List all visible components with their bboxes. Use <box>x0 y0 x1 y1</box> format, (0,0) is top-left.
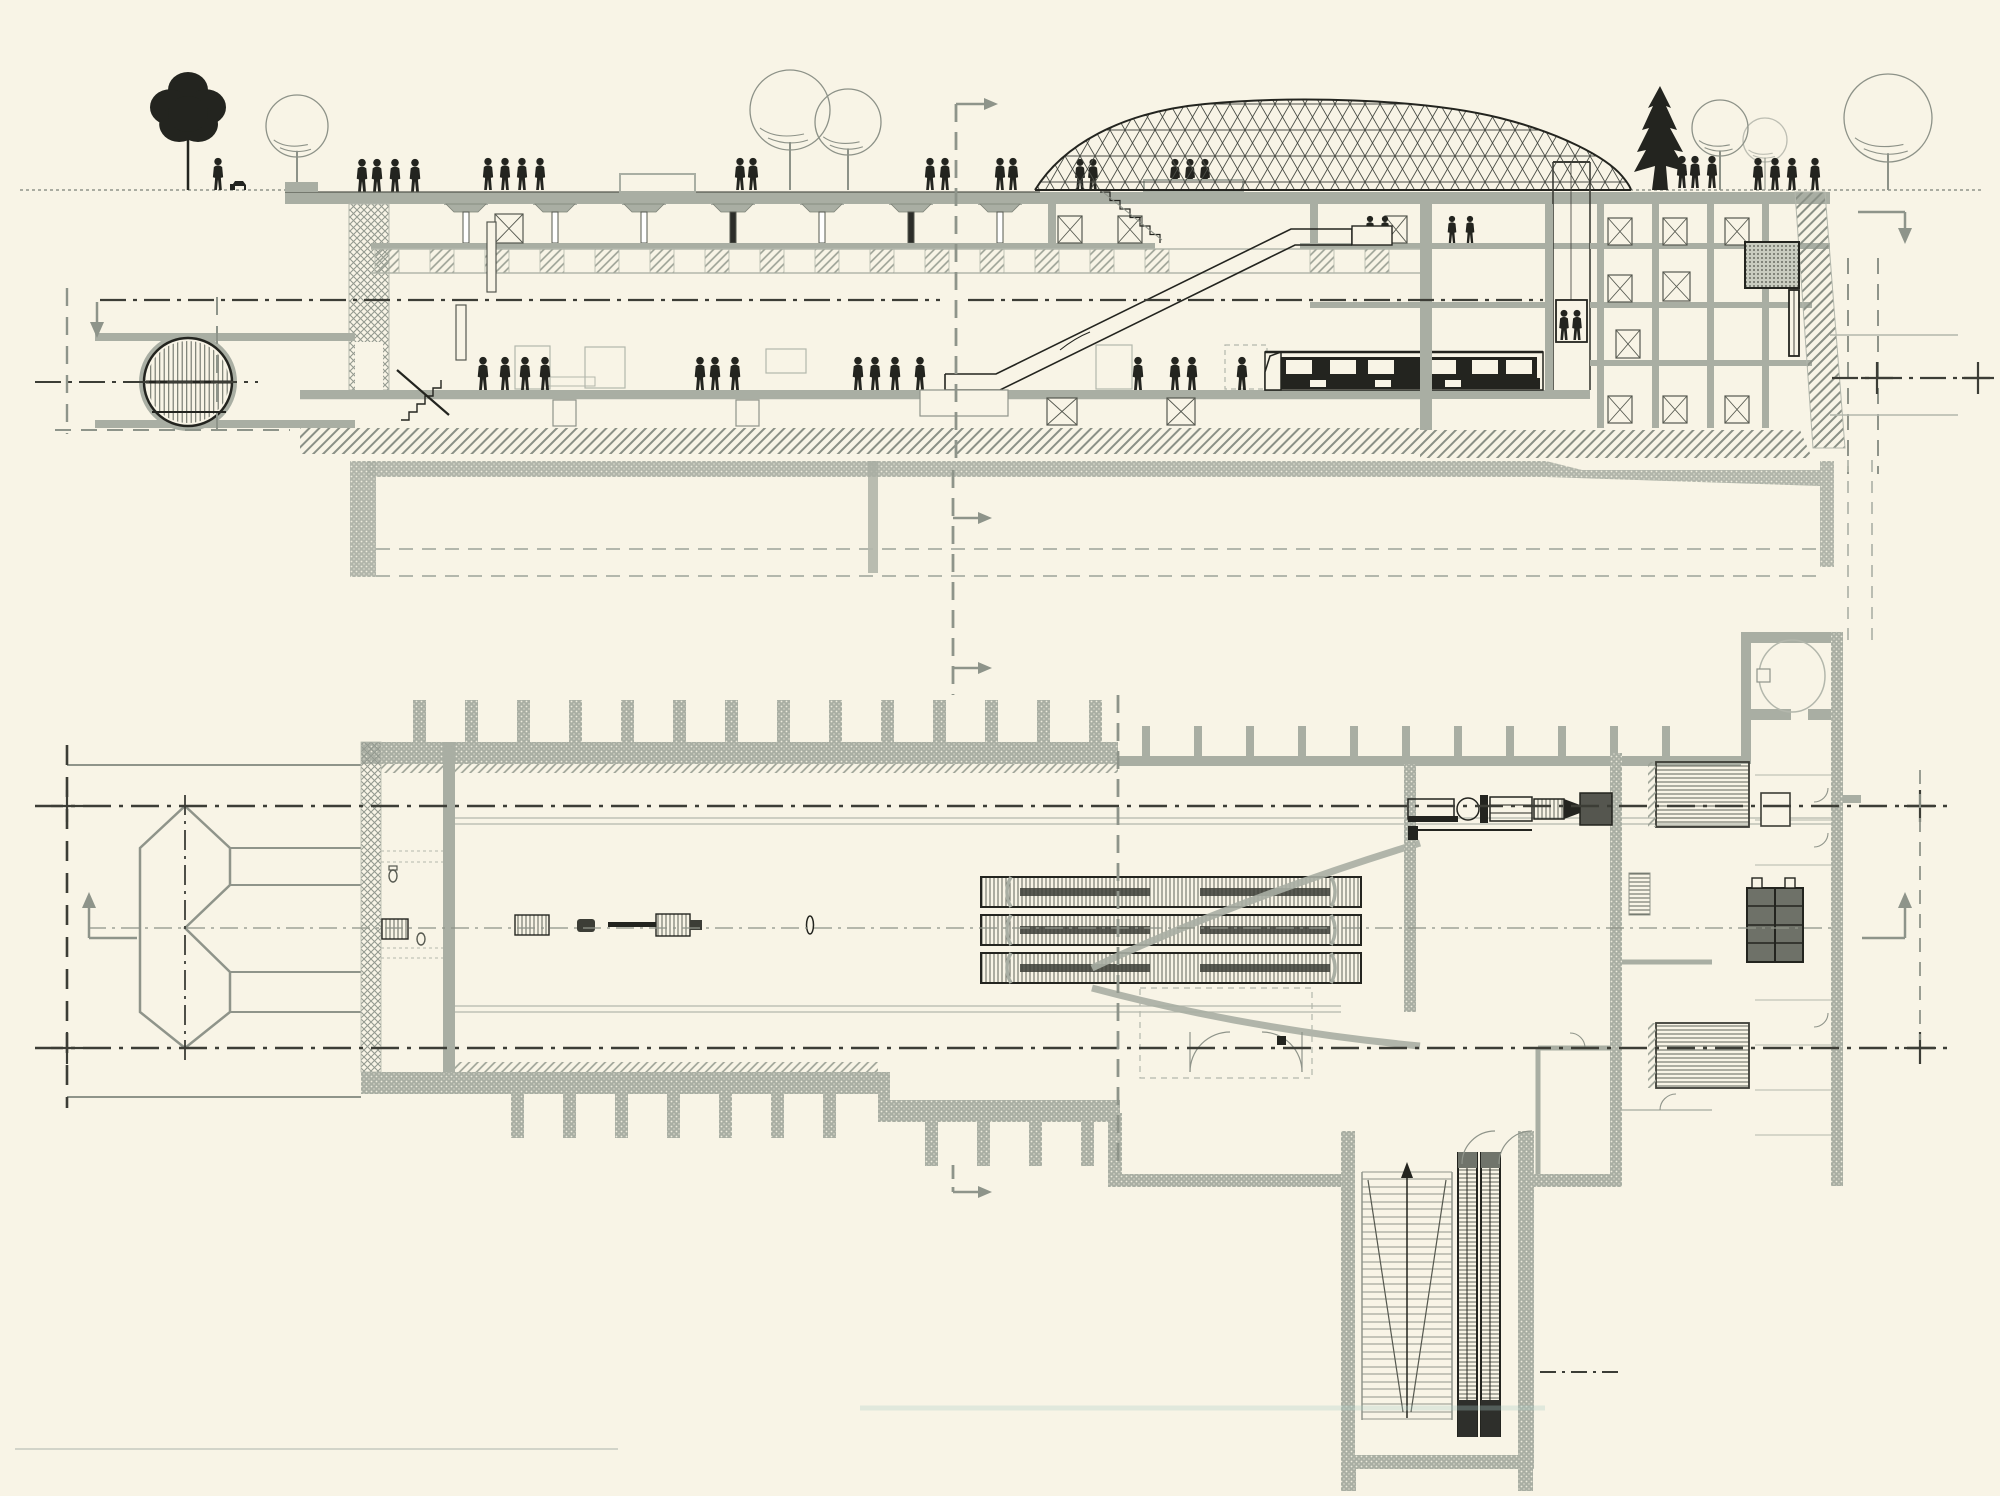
box-top-liner <box>381 764 1118 773</box>
escalator-block-lower-side <box>1648 1023 1656 1088</box>
service-stair <box>1629 873 1650 915</box>
escalator-block-upper <box>1656 762 1749 827</box>
bench-bar <box>608 922 656 927</box>
base-slab-right <box>1420 430 1812 458</box>
escalator-block-lower <box>1656 1023 1749 1088</box>
room-door-1 <box>1608 218 1632 245</box>
building-floor-2b <box>1310 302 1553 308</box>
upper-slab-band <box>367 461 1546 477</box>
mezzanine-door-mid-a <box>1058 216 1082 243</box>
section-train <box>1265 352 1543 390</box>
info-pole-a <box>487 222 496 292</box>
building-left-wall <box>1420 204 1432 430</box>
plant-room-grid <box>1745 242 1799 288</box>
box-left-wall <box>361 742 381 1072</box>
niche-stubs <box>1843 795 1861 803</box>
stalk-wall-left <box>1341 1131 1355 1466</box>
room-door-2 <box>1663 218 1687 245</box>
room-door-8 <box>1663 396 1687 423</box>
room-door-5 <box>1663 272 1690 301</box>
underplatform-xdoor-b <box>1167 398 1195 425</box>
room-door-7 <box>1608 396 1632 423</box>
fanroom-wall-left <box>1741 632 1751 764</box>
building-floor-2 <box>1590 302 1812 308</box>
platform-passengers-2 <box>695 357 741 390</box>
bench-b <box>577 919 595 932</box>
box-top-wall <box>361 742 1118 764</box>
stalk-wall-bottom <box>1341 1455 1534 1469</box>
room-door-3 <box>1725 218 1749 245</box>
concourse-wall-bottom <box>1108 1174 1355 1187</box>
escalator-pit <box>920 390 1008 416</box>
escalator-top-machine <box>1352 226 1392 245</box>
rooflight-box <box>620 174 695 192</box>
roof-parapet <box>285 182 318 192</box>
architectural-drawing <box>0 0 2000 1496</box>
box-inner-wall <box>443 742 455 1072</box>
room-door-6 <box>1616 330 1640 358</box>
box-bottom-step <box>878 1072 890 1122</box>
box-bottom-wall-b <box>890 1100 1120 1122</box>
train-underframe <box>1268 378 1540 389</box>
mezzanine-door-left <box>495 214 523 243</box>
underplatform-xdoor-a <box>1047 398 1077 425</box>
fan-motor <box>1757 669 1770 682</box>
pedestrians-right-a <box>1677 156 1717 188</box>
base-slab <box>300 428 1420 454</box>
plinth-box <box>1761 793 1790 826</box>
mezzanine-door-mid-b <box>1118 216 1142 243</box>
upper-wall-left <box>350 461 376 577</box>
upper-wall-right <box>1820 461 1834 567</box>
tunnel-wall-top <box>95 333 355 341</box>
fanroom-wall-top <box>1741 632 1843 643</box>
drawing-canvas <box>0 0 2000 1496</box>
upper-divider <box>868 461 878 573</box>
hall-right-wall <box>1404 764 1416 1012</box>
room-door-9 <box>1725 396 1749 423</box>
bench-groove-c <box>656 914 690 936</box>
tunnel-wall-bottom <box>95 420 355 428</box>
box-top-wall-thin <box>1118 756 1741 766</box>
plan-outer-wall-right <box>1831 632 1843 1186</box>
elevator-lobby-wall <box>1545 204 1553 390</box>
roof-slab <box>285 192 1830 204</box>
info-pole-b <box>456 305 466 360</box>
building-floor-3 <box>1590 360 1812 366</box>
concourse-dark-fixture <box>1277 1036 1286 1045</box>
stalk-wall-right <box>1518 1131 1534 1466</box>
concourse-wall-bottom-b <box>1534 1174 1622 1187</box>
bench-groove-a <box>515 915 549 935</box>
box-bottom-wall <box>361 1072 890 1094</box>
box-bottom-liner <box>455 1062 878 1072</box>
room-door-4 <box>1608 275 1632 302</box>
escalator-block-upper-side <box>1648 762 1656 827</box>
equipment-left-room <box>382 919 408 939</box>
station-left-wall-opening <box>355 342 383 390</box>
